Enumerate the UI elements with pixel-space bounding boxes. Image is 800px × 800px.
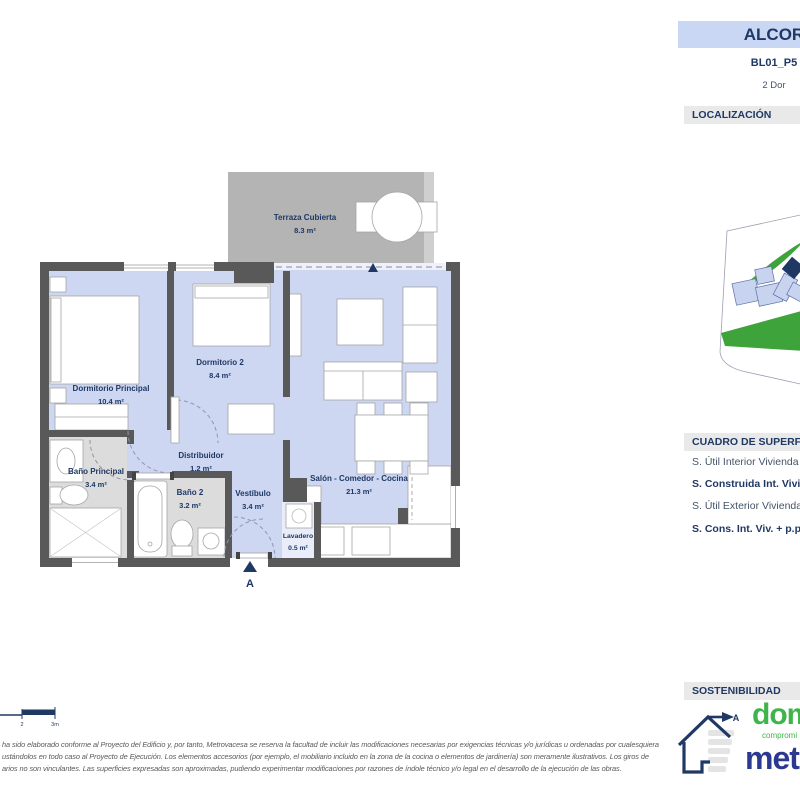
unit-code: BL01_P5 bbox=[678, 57, 800, 69]
fridge bbox=[408, 466, 451, 524]
room-label-terraza: Terraza Cubierta bbox=[274, 213, 337, 222]
svg-text:3.4 m²: 3.4 m² bbox=[242, 502, 264, 511]
surface-row-util-exterior: S. Útil Exterior Vivienda bbox=[692, 500, 800, 512]
svg-text:1.2 m²: 1.2 m² bbox=[190, 464, 212, 473]
room-area-terraza: 8.3 m² bbox=[294, 226, 316, 235]
nightstand bbox=[50, 388, 66, 403]
washbasin bbox=[198, 528, 225, 555]
svg-text:10.4 m²: 10.4 m² bbox=[98, 397, 124, 406]
unit-type: 2 Dor bbox=[678, 80, 800, 91]
svg-text:Dormitorio Principal: Dormitorio Principal bbox=[73, 384, 150, 393]
surface-row-util-interior: S. Útil Interior Vivienda bbox=[692, 456, 800, 468]
entrance-label: A bbox=[246, 578, 254, 590]
dining-chair bbox=[384, 461, 402, 474]
dining-chair bbox=[410, 403, 428, 416]
window bbox=[451, 486, 460, 528]
svg-text:8.4 m²: 8.4 m² bbox=[209, 371, 231, 380]
surface-row-cons-zzcc: S. Cons. Int. Viv. + p.p. ZZCC bbox=[692, 523, 800, 535]
terrace: Terraza Cubierta 8.3 m² bbox=[228, 172, 437, 264]
coffee-table bbox=[337, 299, 383, 345]
svg-text:Baño 2: Baño 2 bbox=[177, 488, 204, 497]
dining-chair bbox=[384, 403, 402, 416]
double-bed bbox=[50, 296, 139, 384]
svg-text:Lavadero: Lavadero bbox=[283, 533, 313, 540]
bedroom1-furniture bbox=[50, 277, 139, 430]
metrovacesa-logo: metr bbox=[745, 740, 800, 777]
dresser bbox=[228, 404, 274, 434]
dining-chair bbox=[357, 461, 375, 474]
side-table bbox=[406, 372, 437, 402]
entrance-door bbox=[236, 552, 272, 559]
disclaimer-line-3: arios no son vinculantes. Las superficie… bbox=[2, 764, 702, 773]
scale-tick-2: 2 bbox=[20, 722, 23, 728]
svg-text:3.4 m²: 3.4 m² bbox=[85, 480, 107, 489]
scale-bar: 2 3m bbox=[0, 702, 70, 728]
energy-rating-icon: A bbox=[678, 704, 740, 778]
svg-text:3.2 m²: 3.2 m² bbox=[179, 501, 201, 510]
terrace-table bbox=[372, 192, 422, 242]
svg-text:Vestíbulo: Vestíbulo bbox=[235, 489, 271, 498]
surface-row-construida-int: S. Construida Int. Vivienda bbox=[692, 478, 800, 490]
svg-text:21.3 m²: 21.3 m² bbox=[346, 487, 372, 496]
svg-text:Distribuidor: Distribuidor bbox=[178, 451, 223, 460]
domum-tagline: compromi bbox=[762, 731, 797, 740]
window bbox=[72, 558, 118, 567]
scale-tick-3m: 3m bbox=[51, 722, 59, 728]
floor-plan: Terraza Cubierta 8.3 m² bbox=[28, 165, 468, 595]
dining-chair bbox=[410, 461, 428, 474]
toilet bbox=[171, 520, 193, 548]
svg-text:0.5 m²: 0.5 m² bbox=[288, 545, 308, 552]
svg-text:Salón - Comedor - Cocina: Salón - Comedor - Cocina bbox=[310, 474, 408, 483]
disclaimer-line-1: ha sido elaborado conforme al Proyecto d… bbox=[2, 740, 702, 749]
disclaimer-line-2: ustándolos en todo caso al Proyecto de E… bbox=[2, 752, 702, 761]
sliding-door-bath2 bbox=[132, 472, 174, 480]
svg-text:Baño Principal: Baño Principal bbox=[68, 467, 124, 476]
energy-rating-letter: A bbox=[733, 713, 740, 723]
dining-table bbox=[355, 415, 428, 461]
project-title: ALCOR bbox=[678, 21, 800, 48]
nightstand bbox=[50, 277, 66, 292]
svg-text:Dormitorio 2: Dormitorio 2 bbox=[196, 358, 244, 367]
floorplan-brochure: { "header": { "title": "ALCOR", "code": … bbox=[0, 0, 800, 800]
dining-chair bbox=[357, 403, 375, 416]
location-map bbox=[690, 213, 800, 388]
section-header-localizacion: LOCALIZACIÓN bbox=[684, 106, 800, 124]
door-leaf bbox=[171, 397, 179, 443]
section-header-superficies: CUADRO DE SUPERFICIES bbox=[684, 433, 800, 451]
domum-logo: domu bbox=[752, 698, 800, 732]
washing-machine bbox=[286, 504, 312, 528]
